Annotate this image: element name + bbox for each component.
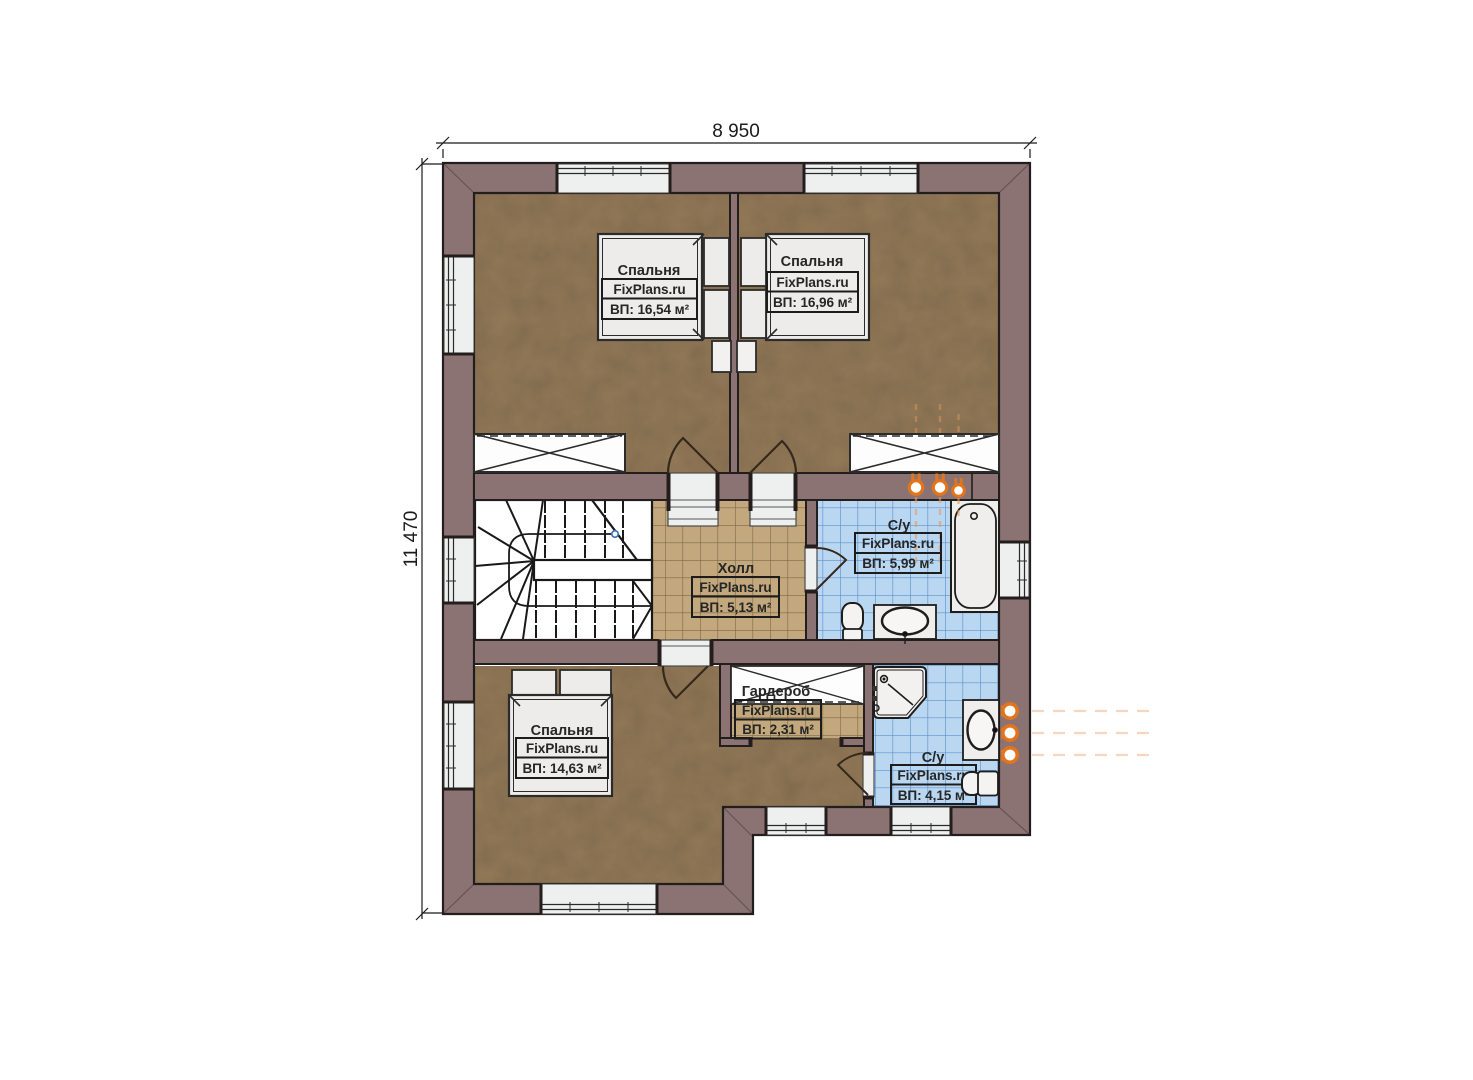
- svg-text:FixPlans.ru: FixPlans.ru: [613, 282, 685, 297]
- svg-text:FixPlans.ru: FixPlans.ru: [699, 580, 771, 595]
- svg-text:FixPlans.ru: FixPlans.ru: [862, 536, 934, 551]
- svg-text:ВП: 4,15 м²: ВП: 4,15 м²: [898, 788, 970, 803]
- svg-text:С/у: С/у: [888, 518, 911, 534]
- svg-text:FixPlans.ru: FixPlans.ru: [776, 275, 848, 290]
- svg-text:FixPlans.ru: FixPlans.ru: [897, 768, 969, 783]
- svg-text:Спальня: Спальня: [531, 723, 594, 739]
- svg-text:ВП: 14,63 м²: ВП: 14,63 м²: [522, 761, 602, 776]
- svg-text:ВП: 2,31 м²: ВП: 2,31 м²: [742, 722, 814, 737]
- svg-text:Спальня: Спальня: [781, 254, 844, 270]
- svg-text:FixPlans.ru: FixPlans.ru: [526, 741, 598, 756]
- svg-text:С/у: С/у: [922, 750, 945, 766]
- svg-text:Гардероб: Гардероб: [742, 684, 811, 700]
- svg-text:11 470: 11 470: [401, 511, 422, 568]
- svg-text:ВП: 16,96 м²: ВП: 16,96 м²: [773, 295, 853, 310]
- svg-text:FixPlans.ru: FixPlans.ru: [742, 703, 814, 718]
- svg-text:Спальня: Спальня: [618, 263, 681, 279]
- svg-text:ВП: 5,99 м²: ВП: 5,99 м²: [862, 556, 934, 571]
- svg-text:ВП: 5,13 м²: ВП: 5,13 м²: [700, 600, 772, 615]
- svg-text:8 950: 8 950: [712, 121, 760, 142]
- svg-text:ВП: 16,54 м²: ВП: 16,54 м²: [610, 302, 690, 317]
- svg-text:Холл: Холл: [718, 561, 754, 577]
